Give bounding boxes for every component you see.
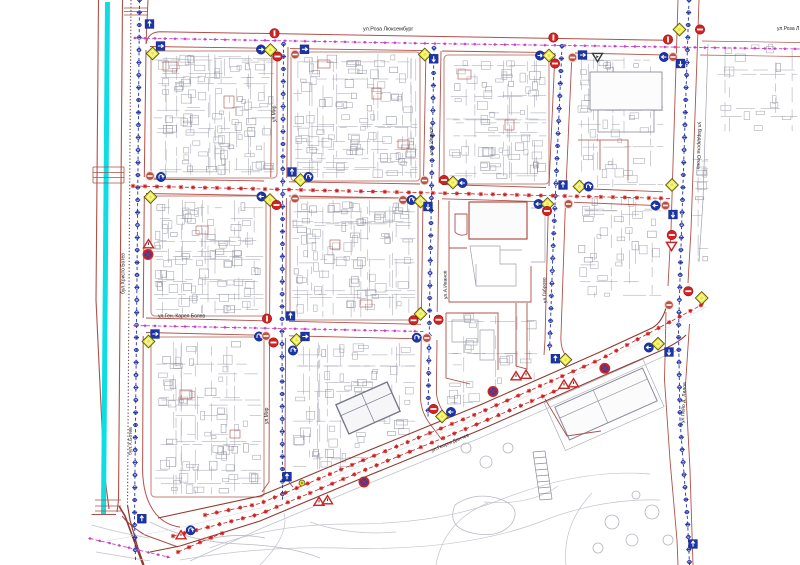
svg-text:ул.А.Иванов: ул.А.Иванов: [442, 270, 449, 299]
svg-text:ул.Роза Л: ул.Роза Л: [777, 26, 799, 32]
svg-text:ул.Мир: ул.Мир: [264, 407, 270, 424]
svg-text:ул.Габрово: ул.Габрово: [542, 277, 549, 303]
svg-text:бул.Х.Ботев: бул.Х.Ботев: [128, 427, 134, 455]
svg-text:ул.Ген. Карел Болев: ул.Ген. Карел Болев: [158, 314, 205, 320]
svg-text:ул.А.Иванов: ул.А.Иванов: [428, 126, 435, 155]
svg-text:ул.Мир: ул.Мир: [272, 105, 278, 122]
svg-text:бул.Христо Ботев: бул.Христо Ботев: [121, 253, 127, 294]
svg-text:ул.Роза Люксембург: ул.Роза Люксембург: [363, 27, 413, 33]
